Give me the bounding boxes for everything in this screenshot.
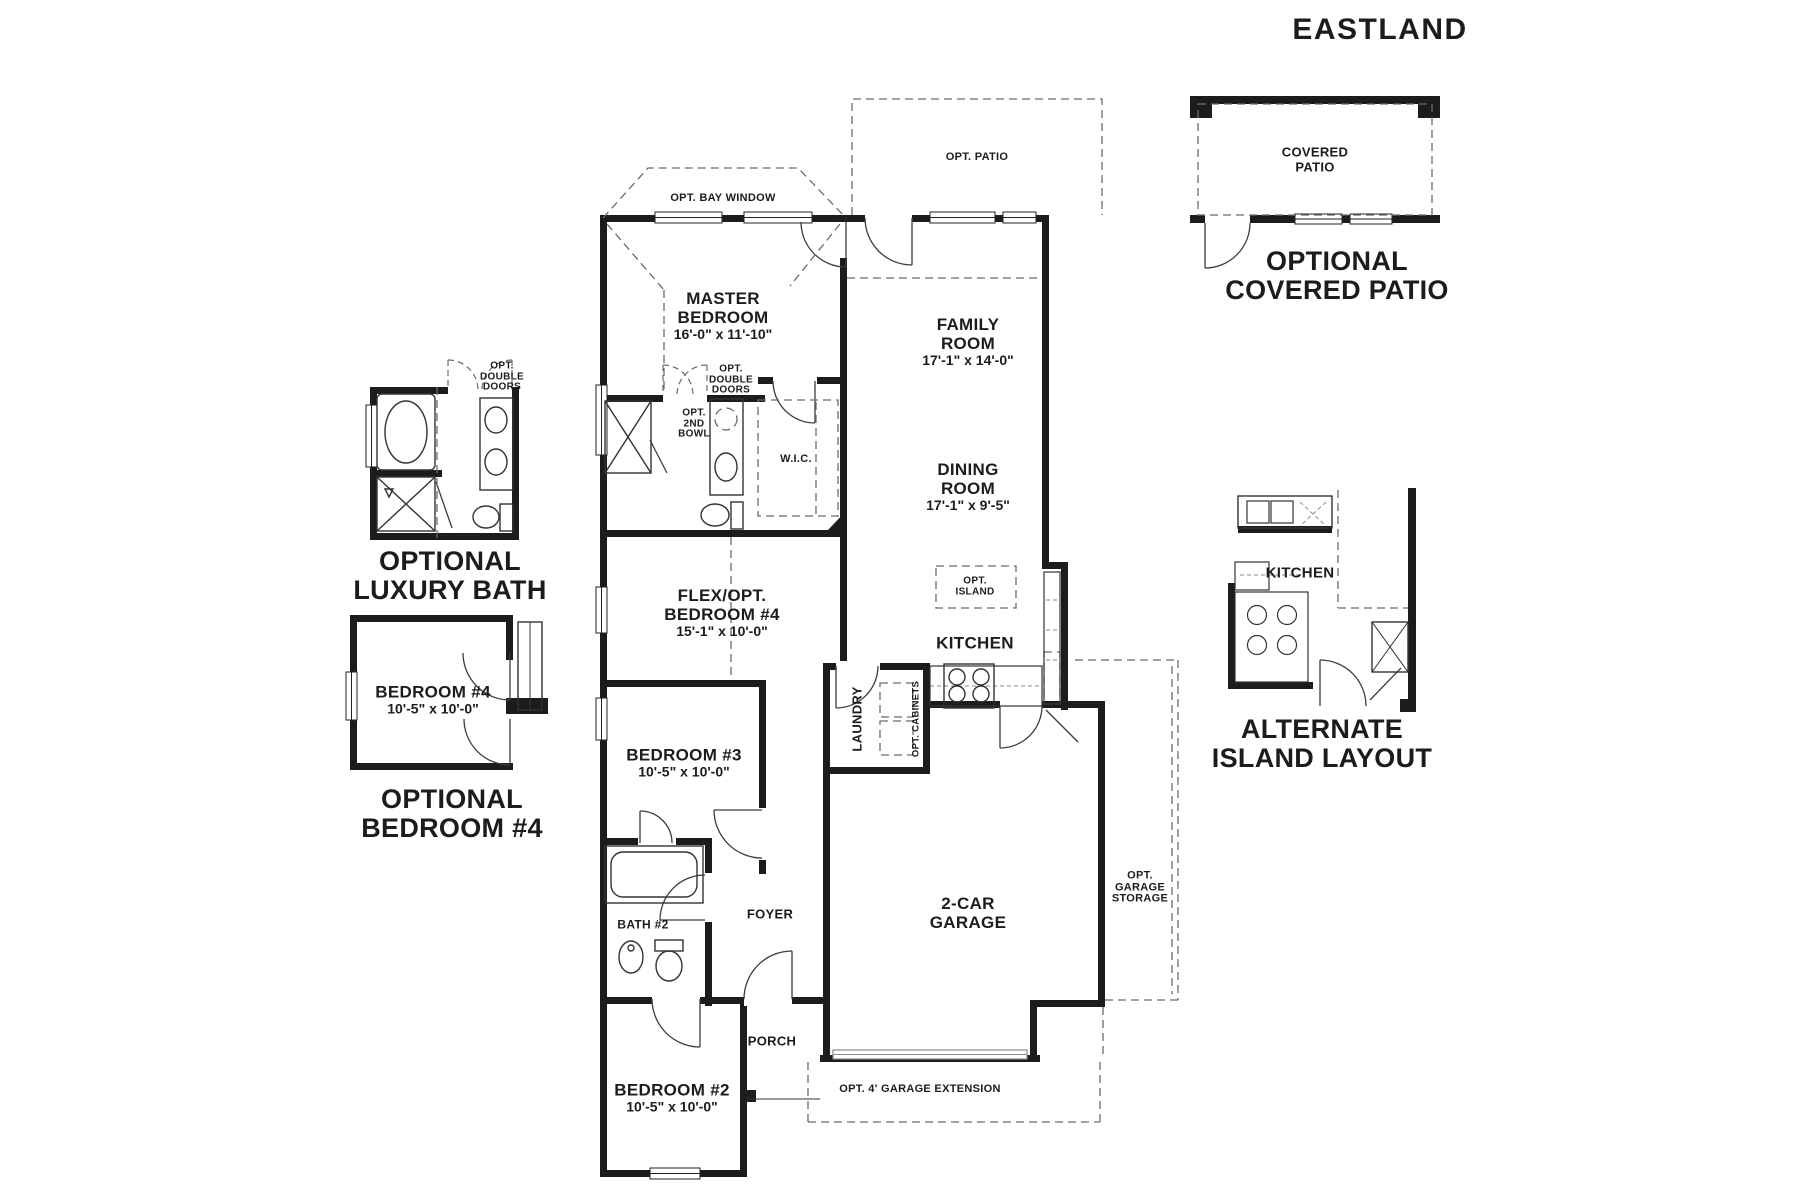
optional-covered-patio-caption: OPTIONAL COVERED PATIO: [1225, 247, 1448, 305]
luxury-opt-double-doors-label: OPT. DOUBLE DOORS: [480, 361, 524, 393]
toilet-icon: [655, 940, 683, 981]
opt-cabinets-outline: [880, 683, 913, 717]
floorplan-page: EASTLAND OPT. PATIO OPT. BAY WINDOW MAST…: [0, 0, 1800, 1200]
flex-bedroom-label: FLEX/OPT. BEDROOM #4 15'-1" x 10'-0": [664, 586, 779, 640]
garden-tub-icon: [377, 394, 435, 470]
laundry-label: LAUNDRY: [851, 686, 866, 751]
toilet-icon: [701, 502, 743, 529]
alt-sink-counter: [1238, 496, 1332, 528]
master-bedroom-label: MASTER BEDROOM 16'-0" x 11'-10": [674, 289, 773, 343]
floorplan-drawing: [0, 0, 1800, 1200]
opt-cabinets-label: OPT. CABINETS: [912, 681, 923, 757]
alternate-island-caption: ALTERNATE ISLAND LAYOUT: [1212, 715, 1432, 773]
closet-door-panel: [518, 622, 542, 710]
kitchen-label: KITCHEN: [936, 633, 1014, 652]
pedestal-sink-icon: [619, 941, 643, 973]
opt-2nd-bowl-label: OPT. 2ND BOWL: [678, 408, 710, 440]
opt-2nd-bowl-sink: [715, 408, 737, 430]
opt-garage-storage-label: OPT. GARAGE STORAGE: [1112, 871, 1168, 906]
bedroom3-label: BEDROOM #3 10'-5" x 10'-0": [626, 746, 741, 781]
foyer-label: FOYER: [747, 908, 793, 923]
bedroom4-inset-label: BEDROOM #4 10'-5" x 10'-0": [375, 683, 490, 718]
porch-label: PORCH: [748, 1035, 796, 1050]
bedroom2-label: BEDROOM #2 10'-5" x 10'-0": [614, 1081, 729, 1116]
optional-bedroom4-caption: OPTIONAL BEDROOM #4: [361, 785, 543, 843]
shower-icon: [377, 477, 435, 531]
windows: [346, 212, 1392, 1179]
vanity-sink-icon: [710, 399, 743, 495]
bathtub-icon: [605, 846, 703, 903]
plan-title: EASTLAND: [1292, 13, 1467, 47]
opt-bay-window-label: OPT. BAY WINDOW: [670, 193, 775, 205]
fridge-icon: [1372, 622, 1408, 672]
garage-door: [833, 1050, 1027, 1059]
bath2-label: BATH #2: [617, 918, 668, 931]
opt-double-doors-label: OPT. DOUBLE DOORS: [709, 364, 753, 396]
shower-icon: [605, 401, 651, 473]
double-vanity-icon: [480, 398, 513, 490]
garage-label: 2-CAR GARAGE: [930, 894, 1006, 932]
family-room-label: FAMILY ROOM 17'-1" x 14'-0": [922, 315, 1014, 369]
dining-room-label: DINING ROOM 17'-1" x 9'-5": [926, 460, 1010, 514]
opt-garage-extension-outline: [808, 1007, 1103, 1122]
opt-garage-extension-label: OPT. 4' GARAGE EXTENSION: [839, 1084, 1000, 1096]
opt-island-label: OPT. ISLAND: [955, 577, 994, 598]
covered-patio-room-label: COVERED PATIO: [1282, 145, 1348, 174]
alt-kitchen-label: KITCHEN: [1266, 566, 1335, 583]
opt-garage-storage-outline: [1075, 660, 1178, 1000]
opt-patio-label: OPT. PATIO: [946, 152, 1009, 164]
door-arcs: [436, 218, 1401, 1047]
wic-label: W.I.C.: [780, 454, 812, 466]
optional-luxury-bath-caption: OPTIONAL LUXURY BATH: [353, 547, 546, 605]
toilet-icon: [473, 504, 513, 531]
